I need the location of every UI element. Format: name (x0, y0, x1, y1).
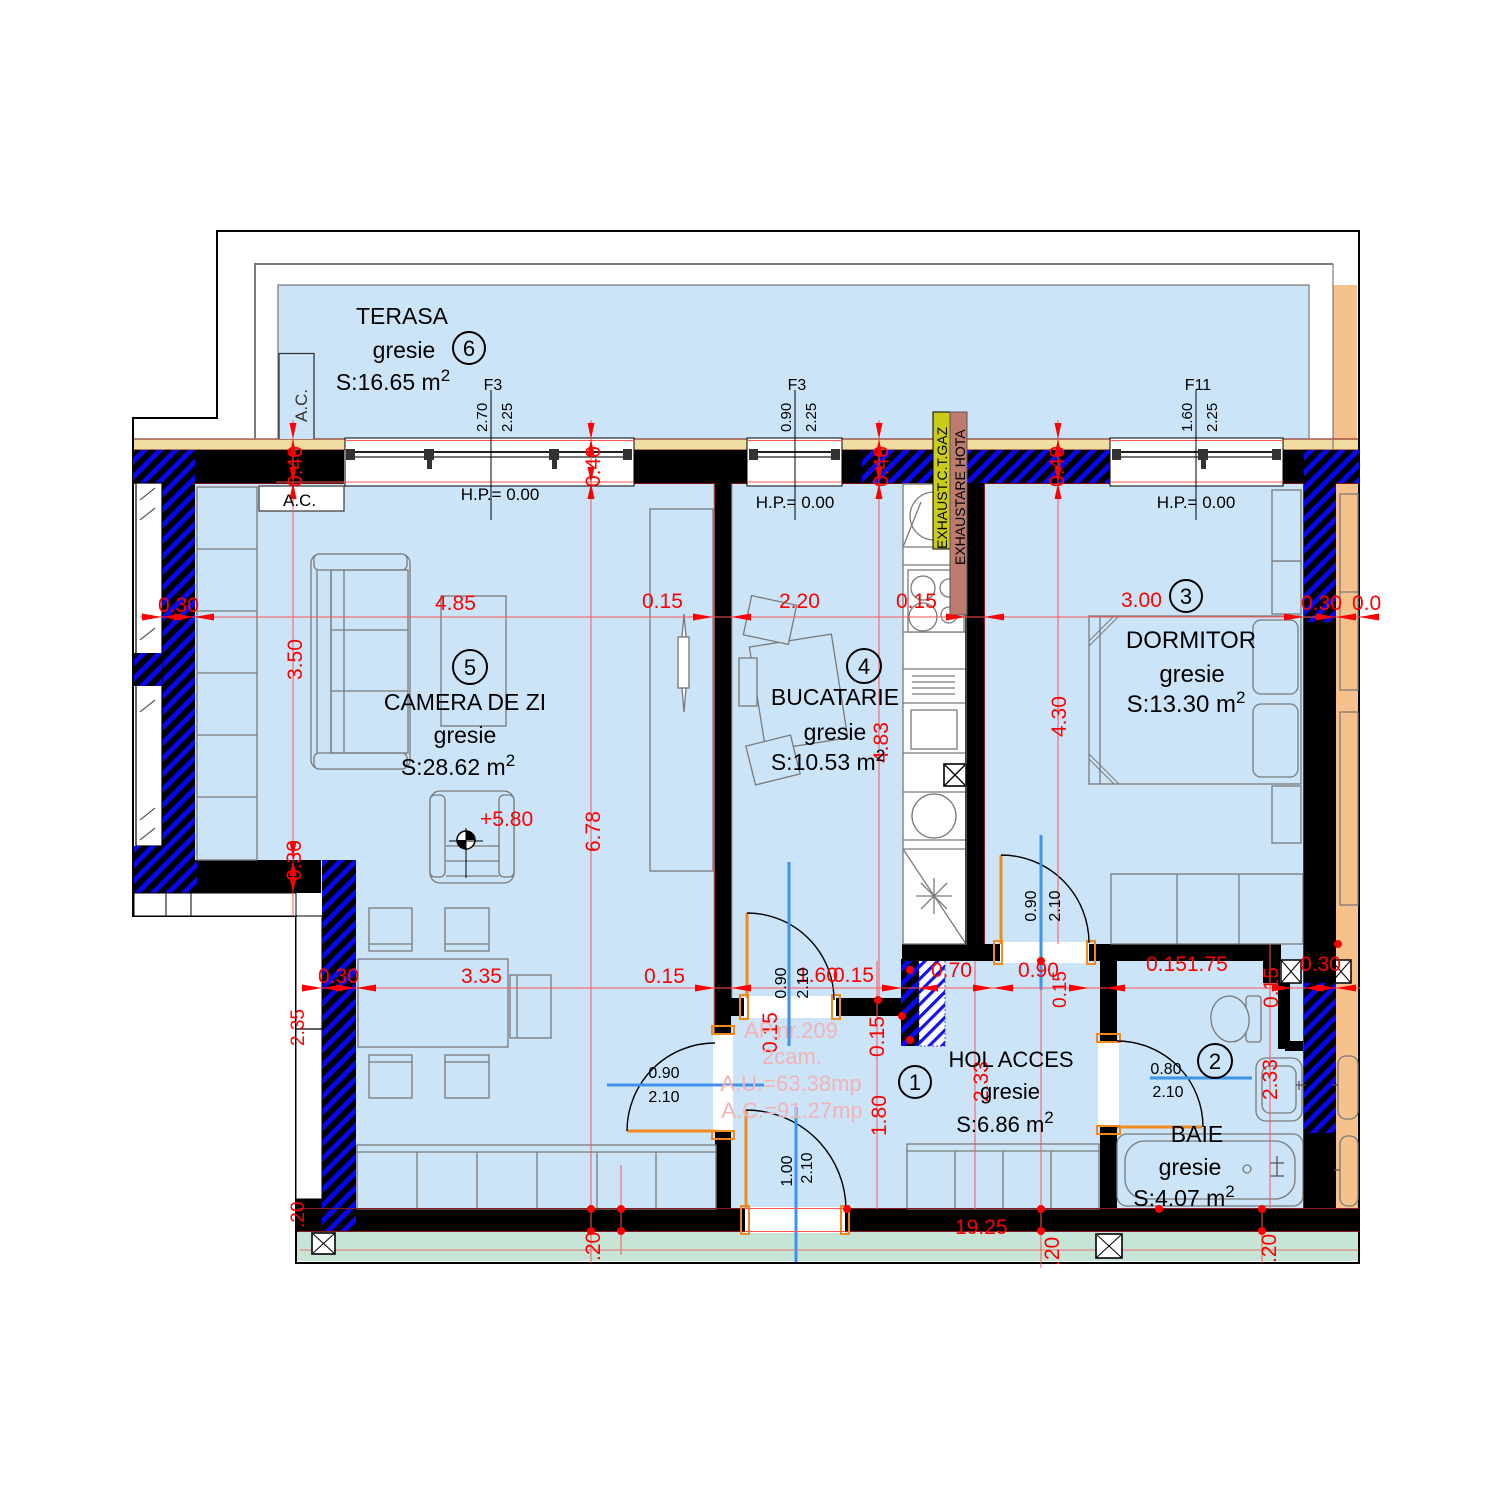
svg-text:4: 4 (858, 654, 870, 679)
svg-text:2cam.: 2cam. (762, 1044, 822, 1069)
svg-text:1.60: 1.60 (1179, 403, 1196, 432)
svg-text:BAIE: BAIE (1171, 1121, 1223, 1147)
svg-text:0.15: 0.15 (644, 965, 685, 988)
svg-text:S:13.30 m2: S:13.30 m2 (1127, 688, 1246, 718)
svg-text:CAMERA DE ZI: CAMERA DE ZI (384, 689, 546, 715)
svg-text:2.10: 2.10 (648, 1089, 679, 1106)
svg-text:3.35: 3.35 (461, 965, 502, 988)
svg-text:3.50: 3.50 (284, 639, 307, 680)
svg-text:TERASA: TERASA (356, 303, 449, 329)
svg-text:19.25: 19.25 (955, 1216, 1008, 1239)
svg-text:0.90: 0.90 (773, 967, 790, 998)
svg-text:0.30: 0.30 (318, 965, 359, 988)
svg-text:A.C.: A.C. (292, 389, 311, 422)
svg-text:4.85: 4.85 (435, 592, 476, 615)
svg-text:0.40: 0.40 (1046, 446, 1069, 487)
svg-text:0.15: 0.15 (642, 590, 683, 613)
svg-text:H.P.= 0.00: H.P.= 0.00 (461, 485, 540, 504)
svg-text:S:6.86 m2: S:6.86 m2 (956, 1108, 1054, 1137)
svg-text:6: 6 (463, 336, 475, 361)
svg-text:2.20: 2.20 (779, 590, 820, 613)
svg-text:HOL ACCES: HOL ACCES (948, 1047, 1073, 1072)
svg-text:2.10: 2.10 (799, 1152, 816, 1183)
svg-text:EXHAUST.C.T.GAZ: EXHAUST.C.T.GAZ (934, 426, 950, 549)
svg-text:0.40: 0.40 (582, 446, 605, 487)
svg-text:0.30: 0.30 (1301, 592, 1342, 615)
svg-text:2.25: 2.25 (1204, 403, 1221, 432)
svg-text:2.25: 2.25 (803, 403, 820, 432)
svg-text:gresie: gresie (434, 722, 497, 748)
svg-text:0.30: 0.30 (283, 840, 306, 881)
svg-text:0.30: 0.30 (1300, 953, 1341, 976)
svg-text:0.15: 0.15 (896, 590, 937, 613)
svg-text:0.80: 0.80 (1150, 1061, 1181, 1078)
svg-text:.20: .20 (288, 1202, 309, 1228)
svg-text:2.33: 2.33 (1259, 1059, 1282, 1100)
svg-text:2.10: 2.10 (795, 967, 812, 998)
svg-text:2.35: 2.35 (288, 1009, 309, 1046)
svg-text:A.U.=63.38mp: A.U.=63.38mp (720, 1071, 861, 1096)
svg-text:A.C.: A.C. (283, 491, 316, 510)
svg-text:AP.nr.209: AP.nr.209 (744, 1018, 838, 1043)
svg-text:F11: F11 (1185, 377, 1211, 394)
svg-text:A.C.=91.27mp: A.C.=91.27mp (721, 1098, 862, 1123)
svg-text:0.40: 0.40 (284, 446, 307, 487)
svg-text:2.25: 2.25 (499, 403, 516, 432)
svg-text:S:28.62 m2: S:28.62 m2 (401, 751, 515, 780)
svg-text:gresie: gresie (1159, 1154, 1222, 1180)
svg-text:DORMITOR: DORMITOR (1126, 627, 1256, 654)
svg-text:0.0: 0.0 (1352, 592, 1381, 615)
svg-text:2.70: 2.70 (474, 403, 491, 432)
svg-text:2.10: 2.10 (1047, 890, 1064, 921)
svg-text:1.80: 1.80 (868, 1095, 891, 1136)
svg-text:6.78: 6.78 (582, 811, 605, 852)
svg-text:EXHAUSTARE HOTA: EXHAUSTARE HOTA (952, 429, 968, 565)
svg-text:gresie: gresie (980, 1079, 1040, 1104)
svg-text:0.40: 0.40 (870, 446, 893, 487)
svg-text:0.90: 0.90 (648, 1065, 679, 1082)
svg-text:4.30: 4.30 (1048, 696, 1071, 737)
svg-text:0.15: 0.15 (866, 1016, 889, 1057)
svg-text:0.90: 0.90 (778, 403, 795, 432)
svg-text:5: 5 (464, 655, 476, 680)
svg-text:BUCATARIE: BUCATARIE (771, 684, 899, 710)
svg-text:H.P.= 0.00: H.P.= 0.00 (756, 493, 835, 512)
svg-text:F3: F3 (484, 377, 503, 394)
svg-text:0.70: 0.70 (931, 959, 972, 982)
svg-text:0.30: 0.30 (158, 594, 199, 617)
svg-text:1: 1 (909, 1070, 921, 1095)
svg-text:+5.80: +5.80 (480, 808, 533, 831)
svg-text:0.15: 0.15 (1050, 971, 1071, 1008)
svg-text:0.90: 0.90 (1023, 890, 1040, 921)
svg-text:2.10: 2.10 (1152, 1084, 1183, 1101)
svg-text:S:4.07 m2: S:4.07 m2 (1133, 1182, 1235, 1211)
svg-text:gresie: gresie (804, 719, 867, 745)
svg-text:H.P.= 0.00: H.P.= 0.00 (1157, 493, 1236, 512)
svg-text:3.00: 3.00 (1121, 589, 1162, 612)
svg-text:S:16.65 m2: S:16.65 m2 (336, 366, 450, 395)
svg-text:0.15: 0.15 (1260, 967, 1283, 1008)
svg-text:2: 2 (1209, 1049, 1221, 1074)
svg-text:.20: .20 (1258, 1234, 1281, 1263)
svg-text:3: 3 (1180, 584, 1192, 609)
svg-text:1.00: 1.00 (779, 1155, 796, 1186)
svg-text:.20: .20 (1041, 1237, 1064, 1266)
svg-text:0.15: 0.15 (833, 964, 874, 987)
svg-text:0.151.75: 0.151.75 (1146, 953, 1228, 976)
svg-text:gresie: gresie (373, 337, 436, 363)
svg-text:.20: .20 (582, 1232, 605, 1261)
svg-text:S:10.53 m2: S:10.53 m2 (771, 746, 885, 775)
svg-text:F3: F3 (788, 377, 807, 394)
svg-text:gresie: gresie (1159, 661, 1224, 688)
